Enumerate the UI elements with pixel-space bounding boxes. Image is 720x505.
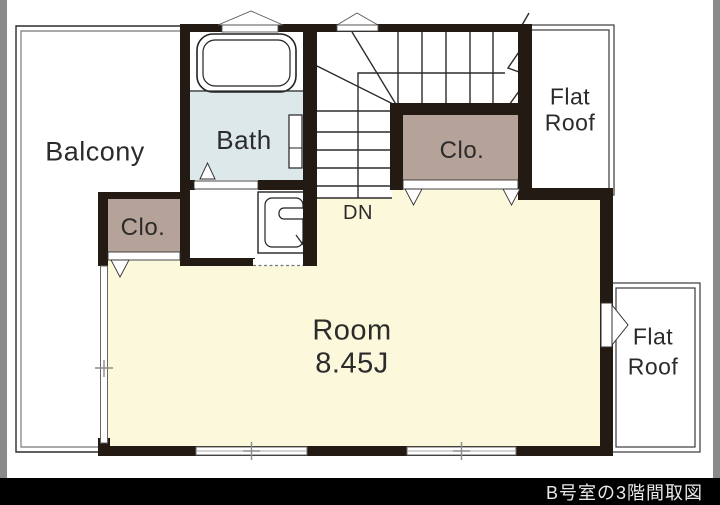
wall-closet-right-top (390, 103, 528, 115)
wall-closet-left-side (98, 192, 108, 266)
floorplan-drawing (0, 0, 720, 505)
wall-bath-bottom-right (258, 180, 303, 190)
flat-roof-top-label-1: Flat (550, 86, 590, 109)
stair-treads-lower-run (317, 111, 392, 198)
room-floor-left (107, 260, 317, 446)
bath-label: Bath (216, 127, 272, 153)
bathtub (190, 34, 303, 92)
closet-left-label: Clo. (121, 216, 166, 240)
window-right-strip (601, 303, 612, 347)
caption-text: B号室の3階間取図 (546, 479, 720, 505)
right-edge-strip (713, 0, 720, 478)
floorplan-page: Balcony Bath Clo. Clo. DN Room 8.45J Fla… (0, 0, 720, 505)
closet-left-door (108, 252, 180, 260)
wall-bath-left (180, 24, 190, 199)
balcony-label: Balcony (45, 139, 145, 166)
flat-roof-bottom-label-2: Roof (628, 356, 679, 379)
bath-sliding-door (194, 181, 258, 189)
room-label: Room (312, 317, 391, 346)
left-edge-strip (0, 0, 7, 478)
flat-roof-top-label-2: Roof (545, 112, 596, 135)
wall-closet-left-right (180, 192, 190, 266)
vanity-unit (258, 192, 307, 253)
stair-treads-top-run (398, 32, 493, 103)
wall-room-top-right (518, 188, 613, 200)
stairs-down-label: DN (343, 203, 373, 223)
caption-bar: B号室の3階間取図 (0, 478, 720, 505)
window-top-bath (222, 25, 278, 32)
wall-closet-right-side (390, 103, 403, 190)
wall-room-bottom (98, 446, 613, 456)
wall-closet-left-top (98, 192, 190, 199)
wall-bath-bottom-left (180, 180, 195, 190)
roof-window-triangle-stairs-icon (337, 13, 378, 25)
closet-right-label: Clo. (440, 139, 485, 163)
stair-winder-lines (317, 32, 397, 106)
bath-wall-panel (289, 115, 302, 168)
window-left-balcony (101, 266, 108, 443)
vanity-basin (265, 198, 303, 247)
room-size-label: 8.45J (315, 350, 388, 379)
closet-right-door (403, 180, 518, 189)
vanity-faucet-icon (279, 208, 307, 219)
roof-window-triangle-bath-icon (218, 11, 283, 25)
flat-roof-bottom-label-1: Flat (633, 326, 673, 349)
window-top-stairs (337, 25, 378, 31)
wall-vanity-bottom (180, 258, 255, 266)
room-floor-right (392, 182, 600, 446)
bathtub-outer (197, 34, 296, 92)
wall-stair-left (303, 24, 317, 266)
